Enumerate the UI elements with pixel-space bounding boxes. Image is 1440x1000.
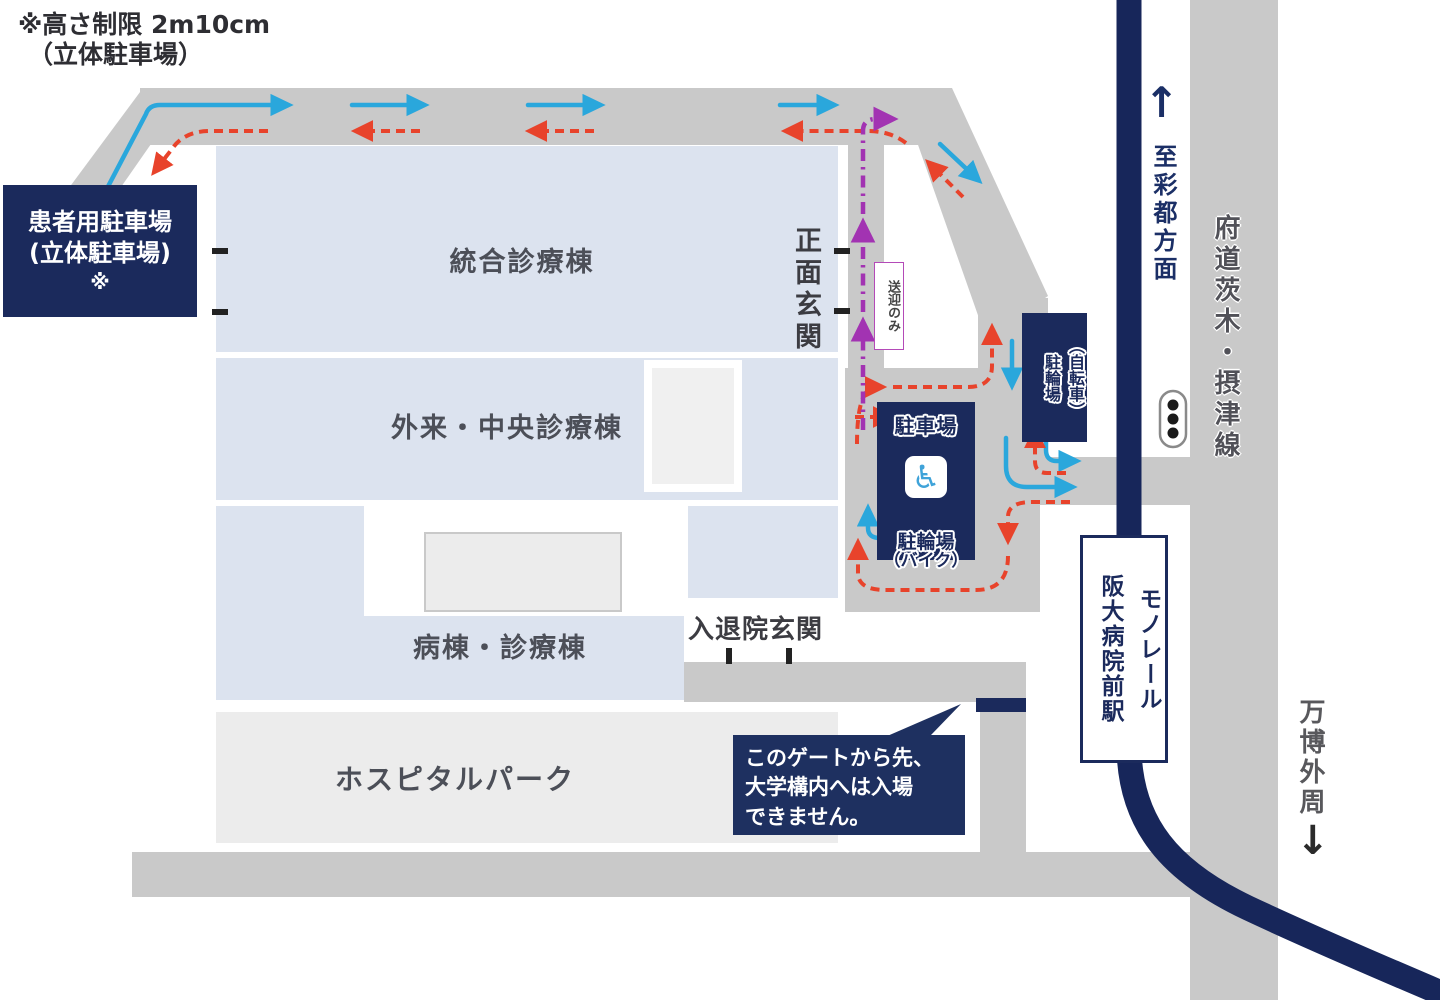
gate-notice-line1: このゲートから先、 [745,744,953,773]
road-top [140,88,935,145]
height-limit-line2: （立体駐車場） [18,40,270,70]
label-hospital-park: ホスピタルパーク [325,758,585,798]
road-south [132,852,1195,897]
car-moto-parking-box: 駐車場 ♿ 駐輪場 （バイク） [877,402,975,560]
road-prefectural [1190,0,1278,1000]
label-expo-outer: 万博外周 [1292,698,1329,818]
dropoff-only-sign: 送迎のみ [874,262,904,350]
gate-bar [976,698,1026,712]
road-ramp-patient-parking [60,88,190,200]
road-gate-stub [980,662,1026,857]
label-ward-clinic: 病棟・診療棟 [380,626,620,665]
bicycle-parking-col-left: 駐輪場 [1039,315,1063,440]
label-prefectural-road: 府道茨木・摂津線 [1207,214,1244,462]
station-name-line1: モノレール [1131,538,1165,760]
label-integrated-clinic: 統合診療棟 [392,240,652,279]
hospital-access-map: ※高さ制限 2m10cm （立体駐車場） 患者用駐車場 (立体駐車場) ※ 統合… [0,0,1440,1000]
monorail-station-box: モノレール 阪大病院前駅 [1080,535,1168,763]
red-route-arrow [1035,437,1066,473]
red-route-arrow [857,387,876,444]
bicycle-parking-col-right: （自転車） [1063,315,1087,440]
blue-route-arrow [940,144,974,176]
road-connector-east [1022,457,1192,505]
blue-route-arrow [1006,438,1066,487]
red-route-arrow [893,334,992,387]
moto-parking-label1: 駐輪場 [877,533,975,553]
red-route-arrow [933,167,963,197]
patient-parking-box: 患者用駐車場 (立体駐車場) ※ [3,185,197,317]
bicycle-parking-box: （自転車） 駐輪場 [1022,313,1087,442]
station-name-line2: 阪大病院前駅 [1093,538,1127,760]
dropoff-route-arrow [863,119,886,214]
expo-outer-down-arrow: ↓ [1296,818,1330,864]
gate-notice-tail [885,704,961,737]
red-route-arrow [1008,502,1070,534]
patient-parking-line1: 患者用駐車場 [28,207,172,238]
label-to-saito: 至彩都方面 [1146,144,1181,284]
height-limit-note: ※高さ制限 2m10cm （立体駐車場） [18,10,270,70]
to-saito-up-arrow: ↑ [1144,78,1179,127]
label-main-entrance: 正面玄関 [786,226,825,354]
label-admission-entrance: 入退院玄関 [688,609,838,646]
red-route-arrow [792,131,906,143]
gate-notice-line3: できません。 [745,803,953,832]
traffic-light-icon [1160,391,1186,447]
patient-parking-line2: (立体駐車場) [28,238,172,269]
height-limit-line1: ※高さ制限 2m10cm [18,10,270,40]
wheelchair-icon: ♿ [905,456,947,498]
courtyard-building-lower [424,532,622,612]
patient-parking-note-mark: ※ [28,269,172,295]
car-parking-label: 駐車場 [877,410,975,439]
gate-notice-line2: 大学構内へは入場 [745,773,953,802]
moto-parking-label2: （バイク） [877,553,975,571]
gate-notice-bubble: このゲートから先、 大学構内へは入場 できません。 [733,735,965,835]
label-outpatient-central: 外来・中央診療棟 [347,406,667,445]
road-diagonal-northeast [898,88,1048,338]
